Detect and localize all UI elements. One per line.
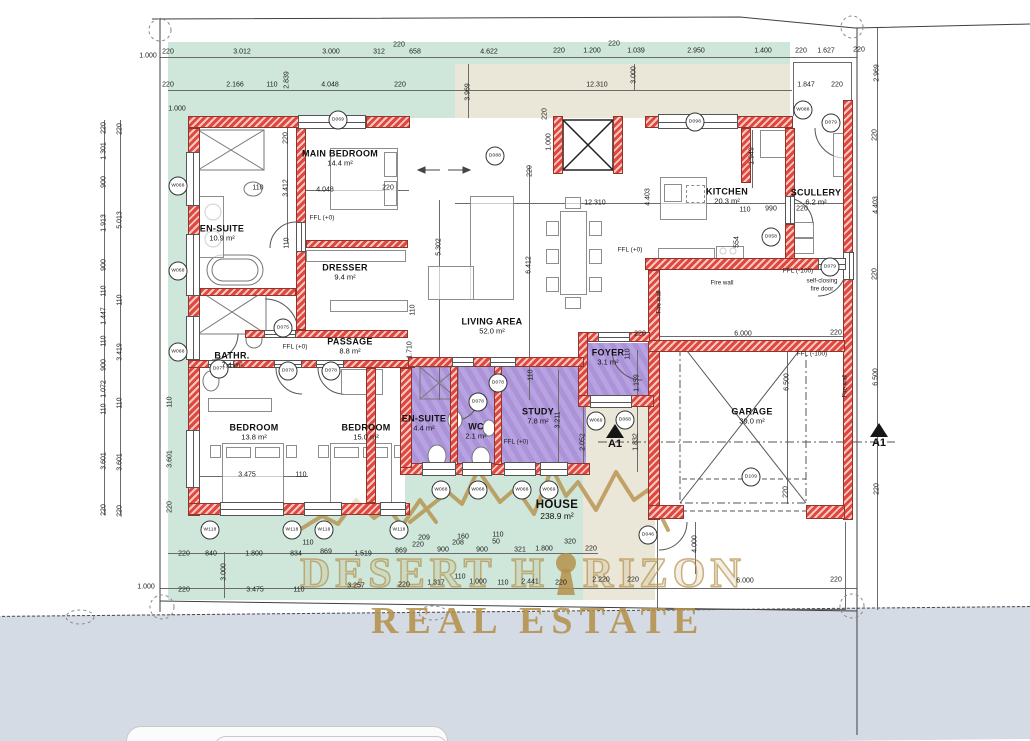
dimension-label: 110 — [167, 396, 174, 407]
dimension-label: 50 — [492, 539, 500, 546]
window-opening — [220, 502, 284, 516]
dimension-label: 1.072 — [101, 380, 108, 398]
dimension-label: 1.913 — [101, 214, 108, 232]
dimension-label: 6.500 — [873, 368, 880, 386]
opening-tag-w118: W118 — [390, 521, 409, 540]
opening-tag-d079: D079 — [821, 258, 840, 277]
room-area: 2.1 m² — [465, 432, 486, 441]
dimension-label: 1.447 — [101, 307, 108, 325]
dimension-label: 220 — [872, 129, 879, 141]
dimension-label: 220 — [874, 483, 881, 495]
wall-segment — [843, 100, 853, 520]
wall-segment — [450, 363, 458, 465]
dimension-label: 220 — [831, 82, 843, 89]
furniture — [565, 297, 581, 309]
floor-level-label: FFL (+0) — [618, 247, 643, 254]
dimension-label: 4.403 — [873, 196, 880, 214]
dimension-label: 5.013 — [117, 211, 124, 229]
room-area: 238.9 m² — [536, 511, 578, 521]
room-name: KITCHEN — [706, 187, 748, 197]
dimension-label: 220 — [527, 165, 534, 177]
wall-segment — [306, 240, 408, 248]
dimension-label: 110 — [497, 580, 508, 587]
window-opening — [490, 357, 516, 367]
opening-tag-w068: W068 — [169, 177, 188, 196]
room-area: 8.8 m² — [327, 347, 372, 356]
furniture — [565, 197, 581, 209]
opening-tag-d078: D078 — [469, 393, 488, 412]
room-name: PASSAGE — [327, 337, 372, 347]
dimension-label: 12.310 — [586, 82, 607, 89]
dimension-label: 110 — [410, 304, 417, 315]
room-label: BEDROOM13.8 m² — [229, 423, 278, 442]
wall-segment — [553, 116, 563, 174]
dimension-label: 6.500 — [784, 373, 791, 391]
dimension-label: 110 — [625, 348, 632, 359]
floor-level-label: FFL (-100) — [797, 351, 827, 358]
dimension-label: 208 — [452, 540, 464, 547]
dimension-label: 1.000 — [546, 133, 553, 151]
dimension-label: 220 — [585, 546, 597, 553]
dimension-label: 900 — [101, 359, 108, 371]
dimension-label: 220 — [101, 122, 108, 134]
room-label: WC2.1 m² — [465, 422, 486, 441]
room-area: 20.3 m² — [706, 197, 748, 206]
opening-tag-d109: D109 — [742, 468, 761, 487]
dimension-label: 900 — [476, 547, 488, 554]
window-opening — [598, 332, 630, 342]
room-name: EN-SUITE — [402, 414, 446, 424]
dimension-label: 220 — [283, 132, 290, 144]
dimension-label: 3.412 — [283, 179, 290, 197]
dimension-label: 3.000 — [631, 66, 638, 84]
furniture — [760, 130, 787, 158]
dimension-label: 220 — [634, 331, 646, 338]
floor-level-label: FFL (+0) — [283, 344, 308, 351]
dimension-label: 220 — [542, 108, 549, 120]
dimension-label: 4.048 — [316, 187, 334, 194]
room-name: HOUSE — [536, 499, 578, 511]
dimension-label: 220 — [830, 577, 842, 584]
room-area: 9.4 m² — [322, 273, 368, 282]
dimension-label: 220 — [853, 47, 865, 54]
dimension-label: 6.000 — [734, 331, 752, 338]
furniture — [341, 369, 383, 395]
dimension-label: 321 — [514, 547, 526, 554]
dimension-label: 1.301 — [101, 142, 108, 160]
dimension-label: 220 — [162, 82, 174, 89]
room-name: STUDY — [522, 407, 554, 417]
furniture — [560, 211, 587, 295]
room-area: 3.1 m² — [592, 358, 625, 367]
dimension-label: 1.000 — [139, 53, 157, 60]
opening-tag-w118: W118 — [201, 521, 220, 540]
dimension-label: 2.166 — [226, 82, 244, 89]
room-name: LIVING AREA — [462, 317, 523, 327]
furniture — [255, 447, 280, 458]
dimension-label: 220 — [608, 41, 620, 48]
window-opening — [540, 462, 568, 476]
dimension-label: 220 — [167, 501, 174, 513]
opening-tag-w069: W069 — [587, 412, 606, 431]
dimension-label: 2.441 — [521, 579, 539, 586]
dimension-label: 4.000 — [692, 535, 699, 553]
furniture — [546, 249, 559, 264]
dimension-label: 990 — [765, 206, 777, 213]
dimension-label: 160 — [457, 534, 469, 541]
furniture — [334, 447, 359, 458]
dimension-label: 2.052 — [580, 433, 587, 451]
dimension-label: 5.302 — [436, 238, 443, 256]
dimension-label: 1.000 — [168, 106, 186, 113]
dimension-label: 3.601 — [117, 453, 124, 471]
watermark-prefix: DESERT H — [300, 550, 549, 598]
room-label: PASSAGE8.8 m² — [327, 337, 372, 356]
room-label: BATHR.7.4 m² — [214, 351, 249, 370]
wall-segment — [188, 116, 302, 128]
dimension-label: 320 — [564, 539, 576, 546]
dimension-label: 1.519 — [354, 551, 372, 558]
furniture — [318, 445, 329, 458]
dimension-label: 110 — [101, 403, 108, 414]
room-label: GARAGE39.0 m² — [731, 407, 772, 426]
room-name: EN-SUITE — [200, 224, 244, 234]
dimension-label: 220 — [553, 48, 565, 55]
furniture — [330, 300, 408, 312]
furniture — [546, 221, 559, 236]
opening-tag-d075: D075 — [274, 319, 293, 338]
room-area: 52.0 m² — [462, 327, 523, 336]
dimension-label: 4.048 — [321, 82, 339, 89]
wall-segment — [200, 288, 296, 296]
dimension-label: 220 — [412, 542, 424, 549]
wall-segment — [366, 116, 410, 128]
section-marker-a1: A1 — [870, 423, 888, 449]
wall-note: Fire wall — [710, 280, 733, 287]
dimension-label: 220 — [796, 206, 808, 213]
room-label: BEDROOM15.0 m² — [341, 423, 390, 442]
dimension-label: 1.000 — [469, 579, 487, 586]
opening-tag-d078: D078 — [279, 362, 298, 381]
dimension-label: 1.000 — [137, 584, 155, 591]
dimension-label: 220 — [394, 82, 406, 89]
dimension-label: 110 — [101, 285, 108, 296]
dimension-label: 220 — [555, 580, 567, 587]
opening-tag-d078: D078 — [489, 374, 508, 393]
dimension-label: 554 — [734, 236, 741, 248]
furniture — [664, 184, 682, 202]
section-marker-a1: A1 — [606, 424, 624, 450]
dimension-label: 110 — [252, 185, 263, 192]
dimension-label: 6.412 — [526, 256, 533, 274]
room-label: DRESSER9.4 m² — [322, 263, 368, 282]
furniture — [384, 152, 397, 177]
opening-tag-d058: D058 — [762, 228, 781, 247]
dimension-label: 110 — [117, 294, 124, 305]
window-opening — [504, 462, 536, 476]
dimension-label: 1.832 — [633, 433, 640, 451]
room-name: BEDROOM — [229, 423, 278, 433]
window-opening — [590, 395, 632, 408]
dimension-label: 1.039 — [627, 48, 645, 55]
dimension-label: 3.475 — [246, 587, 264, 594]
dimension-label: 4.622 — [480, 49, 498, 56]
room-name: GARAGE — [731, 407, 772, 417]
opening-tag-d069: D069 — [329, 111, 348, 130]
dimension-label: 220 — [382, 185, 394, 192]
opening-tag-w068: W068 — [169, 343, 188, 362]
room-name: WC — [465, 422, 486, 432]
room-label: EN-SUITE10.9 m² — [200, 224, 244, 243]
dimension-label: 110 — [293, 587, 304, 594]
watermark-line2: REAL ESTATE — [371, 599, 705, 643]
dimension-label: 3.601 — [101, 452, 108, 470]
room-label: STUDY7.8 m² — [522, 407, 554, 426]
room-area: 7.4 m² — [214, 361, 249, 370]
wall-note: fire door — [811, 286, 834, 293]
dimension-label: 220 — [398, 582, 410, 589]
dimension-label: 220 — [162, 49, 174, 56]
section-arrow-icon — [606, 424, 624, 438]
opening-tag-w118: W118 — [283, 521, 302, 540]
window-opening — [380, 502, 406, 516]
furniture — [686, 185, 705, 203]
dimension-label: 3.000 — [322, 49, 340, 56]
dimension-label: 1.627 — [817, 48, 835, 55]
dimension-label: 1.800 — [245, 551, 263, 558]
section-label: A1 — [870, 437, 888, 449]
dimension-label: 1.200 — [583, 48, 601, 55]
dimension-label: 1.710 — [407, 341, 414, 359]
room-label: HOUSE238.9 m² — [536, 499, 578, 521]
opening-tag-w088: W088 — [794, 101, 813, 120]
dimension-label: 2.839 — [284, 71, 291, 89]
dimension-label: 220 — [393, 42, 405, 49]
opening-tag-d079: D079 — [822, 114, 841, 133]
dimension-label: 220 — [117, 123, 124, 135]
room-area: 15.0 m² — [341, 433, 390, 442]
section-arrow-icon — [870, 423, 888, 437]
dimension-label: 6.000 — [736, 578, 754, 585]
dimension-label: 869 — [320, 549, 332, 556]
dimension-label: 834 — [290, 551, 302, 558]
dimension-label: 110 — [454, 574, 465, 581]
window-opening — [462, 462, 492, 476]
window-opening — [304, 502, 342, 516]
room-label: EN-SUITE4.4 m² — [402, 414, 446, 433]
wall-segment — [645, 258, 845, 270]
dimension-label: 110 — [528, 369, 535, 380]
room-area: 4.4 m² — [402, 424, 446, 433]
room-area: 7.8 m² — [522, 417, 554, 426]
wall-segment — [806, 505, 845, 519]
dimension-label: 3.475 — [238, 472, 256, 479]
room-area: 39.0 m² — [731, 417, 772, 426]
dimension-label: 110 — [117, 397, 124, 408]
dimension-label: 3.969 — [465, 83, 472, 101]
room-name: FOYER — [592, 348, 625, 358]
dimension-label: 220 — [872, 268, 879, 280]
wall-segment — [785, 224, 795, 260]
room-area: 13.8 m² — [229, 433, 278, 442]
dimension-label: 1.847 — [797, 82, 815, 89]
dimension-label: 869 — [395, 548, 407, 555]
dimension-label: 3.211 — [555, 412, 562, 429]
opening-tag-d098: D098 — [686, 113, 705, 132]
dimension-label: 220 — [627, 577, 639, 584]
floor-level-label: FFL (+0) — [504, 439, 529, 446]
dimension-label: 900 — [437, 547, 449, 554]
dimension-label: 4.403 — [645, 188, 652, 206]
dimension-label: 658 — [409, 49, 421, 56]
opening-tag-w118: W118 — [315, 521, 334, 540]
dimension-label: 3.257 — [347, 583, 365, 590]
room-name: DRESSER — [322, 263, 368, 273]
dimension-label: 3.000 — [221, 563, 228, 581]
dimension-label: 1.400 — [754, 48, 772, 55]
window-opening — [452, 357, 474, 367]
dimension-label: 2.950 — [687, 48, 705, 55]
dimension-label: 2.220 — [592, 577, 610, 584]
furniture — [208, 398, 272, 412]
dimension-label: 3.601 — [167, 450, 174, 468]
room-label: MAIN BEDROOM14.4 m² — [302, 149, 378, 168]
dimension-label: 110 — [302, 540, 313, 547]
wall-segment — [648, 505, 684, 519]
fireplace-icon — [563, 120, 613, 170]
opening-tag-d088: D088 — [486, 147, 505, 166]
room-label: KITCHEN20.3 m² — [706, 187, 748, 206]
opening-tag-d078: D078 — [322, 362, 341, 381]
window-opening — [296, 222, 306, 252]
wall-note: self-closing — [807, 278, 838, 285]
room-area: 10.9 m² — [200, 234, 244, 243]
furniture — [286, 445, 297, 458]
watermark-keyhole-icon — [553, 551, 579, 597]
dimension-label: 1.800 — [535, 546, 553, 553]
furniture — [589, 249, 602, 264]
window-opening — [186, 152, 200, 206]
dimension-label: 900 — [101, 259, 108, 271]
dimension-label: 110 — [492, 532, 503, 539]
dimension-label: 840 — [205, 551, 217, 558]
furniture — [210, 445, 221, 458]
bottom-overlay-pill-inner — [214, 736, 448, 741]
wall-note: Fire wall — [842, 374, 849, 397]
opening-tag-w068: W068 — [169, 262, 188, 281]
dimension-label: 2.969 — [874, 64, 881, 82]
dimension-label: 12.310 — [584, 200, 605, 207]
window-opening — [186, 316, 200, 360]
dimension-label: 312 — [373, 49, 385, 56]
watermark-suffix: RIZON — [583, 550, 746, 598]
dimension-label: 110 — [284, 237, 291, 248]
dimension-label: 1.317 — [427, 580, 445, 587]
dimension-label: 900 — [101, 176, 108, 188]
floor-plan-page: 2203.0123.0003122206584.6222201.2002201.… — [0, 0, 1030, 741]
dimension-label: 220 — [783, 486, 790, 498]
dimension-label: 220 — [795, 48, 807, 55]
dimension-label: 3.012 — [233, 49, 251, 56]
dimension-label: 110 — [266, 82, 277, 89]
dimension-label: 209 — [418, 535, 430, 542]
dimension-label: 220 — [830, 330, 842, 337]
window-opening — [186, 430, 200, 488]
window-opening — [186, 234, 200, 296]
opening-tag-d046: D046 — [639, 526, 658, 545]
dimension-label: 220 — [117, 505, 124, 517]
window-opening — [422, 462, 456, 476]
furniture — [589, 221, 602, 236]
furniture — [428, 266, 474, 300]
room-area: 14.4 m² — [302, 159, 378, 168]
dimension-label: 110 — [295, 472, 306, 479]
room-name: MAIN BEDROOM — [302, 149, 378, 159]
dimension-label: 3.419 — [117, 343, 124, 361]
furniture — [546, 277, 559, 292]
wall-segment — [645, 116, 659, 128]
room-name: BEDROOM — [341, 423, 390, 433]
dimension-label: 220 — [101, 504, 108, 516]
room-label: FOYER3.1 m² — [592, 348, 625, 367]
wall-segment — [736, 116, 793, 128]
wall-segment — [613, 116, 623, 174]
floor-level-label: FFL (-100) — [783, 268, 813, 275]
room-area: 6.2 m² — [791, 198, 842, 207]
section-label: A1 — [606, 438, 624, 450]
furniture — [589, 277, 602, 292]
dimension-label: 1.159 — [634, 374, 641, 392]
furniture — [470, 196, 514, 300]
room-label: SCULLERY6.2 m² — [791, 188, 842, 207]
dimension-label: 220 — [178, 587, 190, 594]
dimension-label: 110 — [739, 207, 750, 214]
opening-tag-w068: W068 — [469, 481, 488, 500]
room-label: LIVING AREA52.0 m² — [462, 317, 523, 336]
dimension-label: 1.949 — [749, 147, 756, 165]
dimension-label: 110 — [101, 335, 108, 346]
wall-note: Fire wall — [656, 290, 663, 313]
opening-tag-w068: W068 — [513, 481, 532, 500]
room-name: SCULLERY — [791, 188, 842, 198]
furniture — [306, 250, 406, 262]
room-name: BATHR. — [214, 351, 249, 361]
opening-tag-w068: W068 — [432, 481, 451, 500]
furniture — [226, 447, 251, 458]
dimension-label: 220 — [178, 551, 190, 558]
floor-level-label: FFL (+0) — [310, 215, 335, 222]
opening-tag-w069: W069 — [540, 481, 559, 500]
